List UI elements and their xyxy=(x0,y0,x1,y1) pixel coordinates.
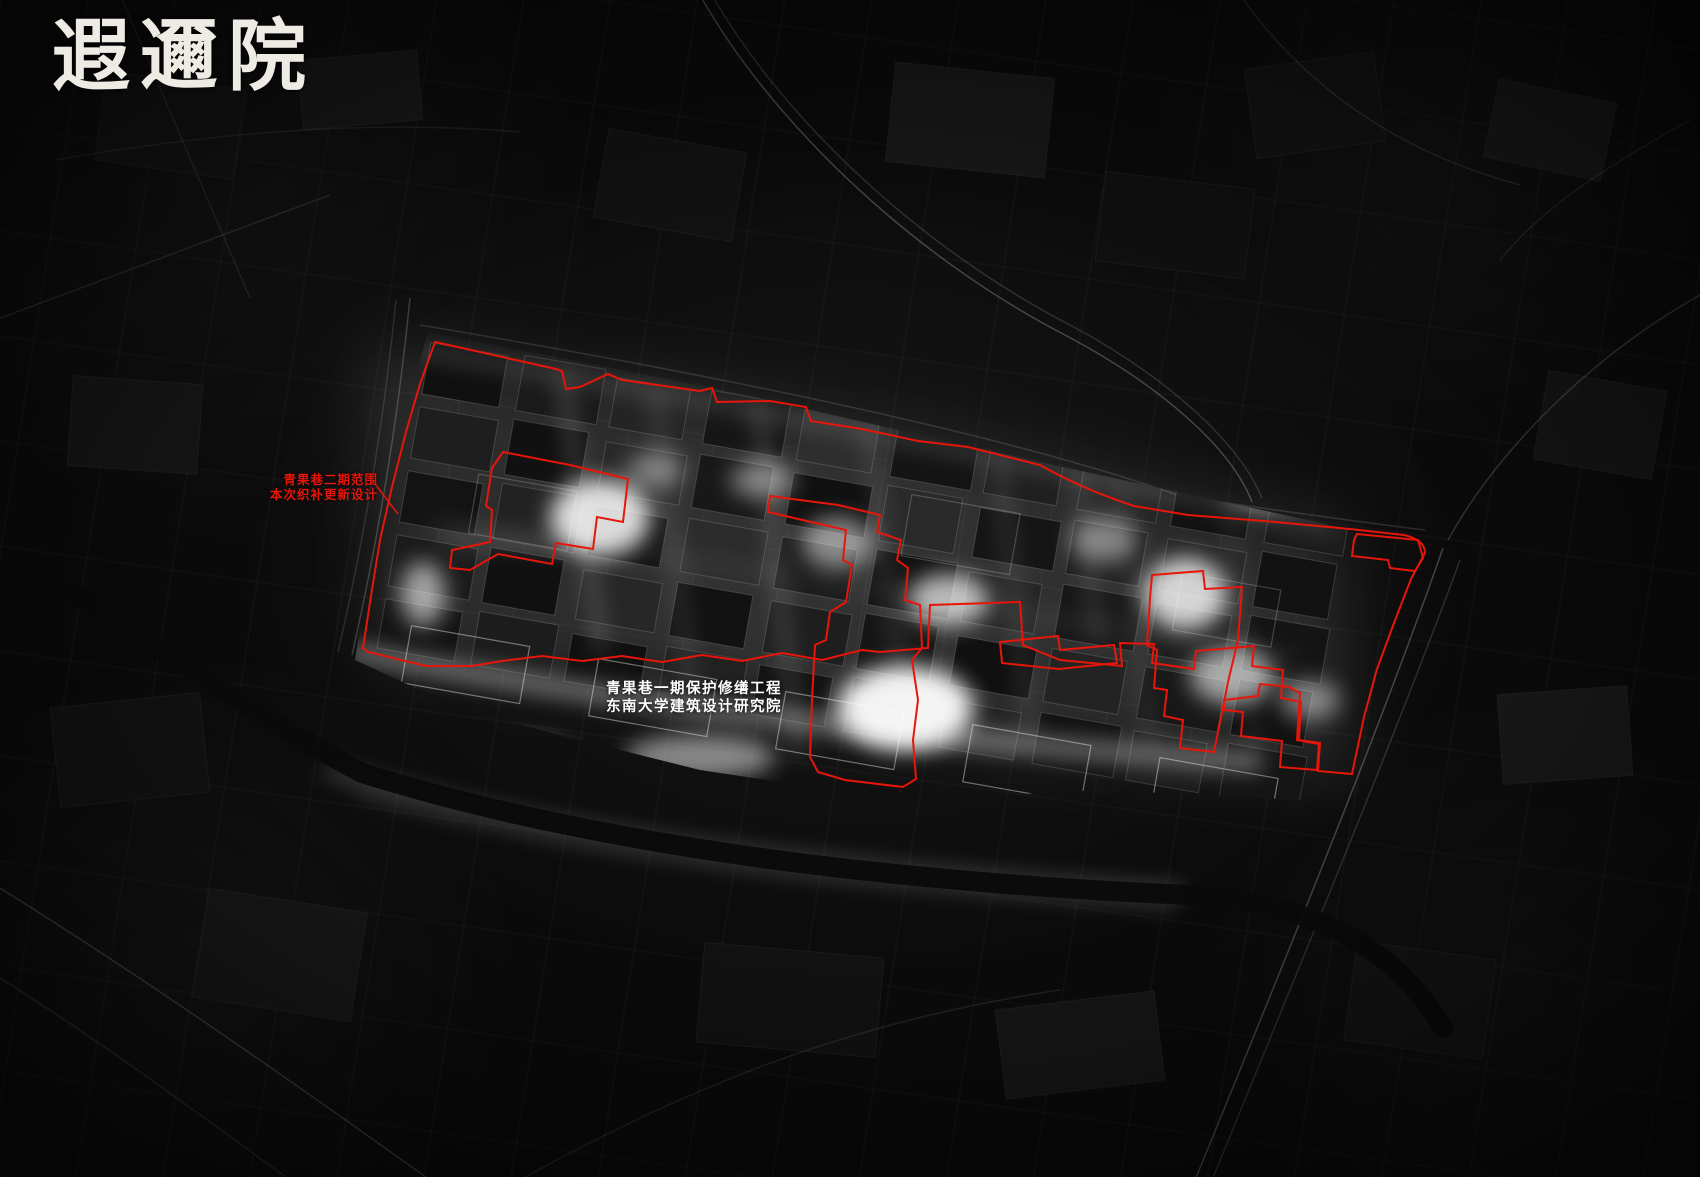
phase1-annotation: 青果巷一期保护修缮工程 东南大学建筑设计研究院 xyxy=(606,681,782,716)
map-graphics xyxy=(0,0,1700,1177)
poster-title: 遐邇院 xyxy=(52,12,316,102)
inner-parcel-northeast xyxy=(1352,534,1423,571)
phase2-annotation-line2: 本次织补更新设计 xyxy=(233,487,378,502)
phase2-annotation: 青果巷二期范围 本次织补更新设计 xyxy=(233,472,378,502)
aerial-map-poster: 遐邇院 青果巷二期范围 本次织补更新设计 青果巷一期保护修缮工程 东南大学建筑设… xyxy=(0,0,1700,1177)
phase2-annotation-line1: 青果巷二期范围 xyxy=(233,472,378,487)
phase1-annotation-line1: 青果巷一期保护修缮工程 xyxy=(606,681,782,699)
phase1-annotation-line2: 东南大学建筑设计研究院 xyxy=(606,699,782,717)
